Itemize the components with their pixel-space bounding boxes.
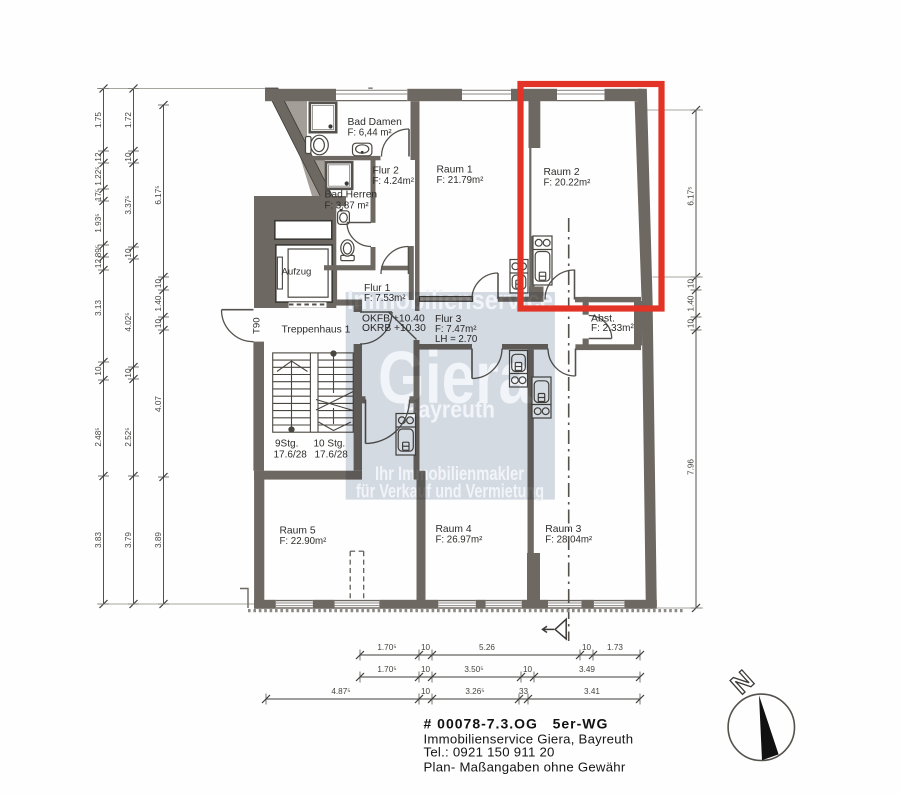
svg-text:89⁵: 89⁵ (94, 245, 103, 258)
svg-text:F: 6,44 m²: F: 6,44 m² (348, 128, 393, 139)
svg-text:Treppenhaus 1: Treppenhaus 1 (282, 325, 351, 336)
svg-text:1.40: 1.40 (154, 295, 163, 311)
svg-text:Flur 2: Flur 2 (373, 166, 400, 177)
svg-text:17⁵: 17⁵ (94, 189, 103, 202)
svg-text:Bad Damen: Bad Damen (348, 117, 403, 128)
svg-text:10: 10 (124, 368, 133, 378)
svg-text:10: 10 (154, 279, 163, 289)
svg-text:F: 2.33m²: F: 2.33m² (591, 323, 634, 334)
svg-text:Raum 3: Raum 3 (545, 524, 581, 535)
svg-text:4.02⁵: 4.02⁵ (124, 312, 133, 331)
svg-text:2.52⁵: 2.52⁵ (124, 427, 133, 446)
svg-text:3.26⁵: 3.26⁵ (465, 687, 484, 696)
svg-text:1.70⁵: 1.70⁵ (377, 643, 396, 652)
svg-text:10: 10 (124, 152, 133, 162)
svg-text:10: 10 (94, 366, 103, 376)
svg-text:1.73: 1.73 (607, 643, 623, 652)
svg-text:F: 26.97m²: F: 26.97m² (436, 535, 484, 546)
svg-text:9Stg.: 9Stg. (275, 439, 298, 450)
svg-text:Bayreuth: Bayreuth (403, 397, 495, 424)
svg-text:1.70⁵: 1.70⁵ (377, 665, 396, 674)
svg-text:5.26: 5.26 (479, 643, 495, 652)
svg-text:3.37⁵: 3.37⁵ (124, 195, 133, 214)
svg-text:17.6/28: 17.6/28 (315, 450, 349, 461)
svg-text:10: 10 (421, 665, 431, 674)
svg-text:F: 28.04m²: F: 28.04m² (545, 535, 593, 546)
svg-text:F: 3,87 m²: F: 3,87 m² (325, 201, 370, 212)
svg-text:10: 10 (687, 319, 696, 329)
svg-text:3.83: 3.83 (94, 532, 103, 548)
svg-text:1.75: 1.75 (94, 112, 103, 128)
svg-text:4.07: 4.07 (154, 396, 163, 412)
svg-text:Tel.: 0921 150 911 20: Tel.: 0921 150 911 20 (424, 745, 555, 760)
svg-text:Raum 2: Raum 2 (544, 167, 580, 178)
svg-text:12: 12 (94, 259, 103, 269)
svg-text:F: 21.79m²: F: 21.79m² (437, 175, 485, 186)
svg-text:6.17⁵: 6.17⁵ (687, 186, 696, 205)
svg-text:# 00078-7.3.OG 5er-WG: # 00078-7.3.OG 5er-WG (424, 716, 609, 732)
svg-text:3.41: 3.41 (584, 687, 600, 696)
svg-text:Raum 1: Raum 1 (437, 165, 473, 176)
svg-text:1.22⁵: 1.22⁵ (94, 166, 103, 185)
svg-text:T90: T90 (252, 317, 263, 334)
svg-text:33: 33 (519, 687, 529, 696)
svg-text:10 Stg.: 10 Stg. (314, 439, 346, 450)
svg-text:1.93⁵: 1.93⁵ (94, 213, 103, 232)
svg-text:10: 10 (421, 643, 431, 652)
svg-text:17.6/28: 17.6/28 (274, 450, 308, 461)
svg-text:7.96: 7.96 (687, 459, 696, 475)
svg-text:3.89: 3.89 (154, 532, 163, 548)
svg-text:10: 10 (154, 319, 163, 329)
svg-text:Raum 4: Raum 4 (436, 524, 472, 535)
svg-text:Aufzug: Aufzug (282, 267, 312, 278)
svg-text:für Verkauf und Vermietung: für Verkauf und Vermietung (356, 481, 544, 503)
svg-text:10: 10 (523, 665, 533, 674)
svg-text:F: 20.22m²: F: 20.22m² (544, 178, 592, 189)
svg-text:1.72: 1.72 (124, 112, 133, 128)
svg-text:10: 10 (124, 248, 133, 258)
svg-text:Bad Herren: Bad Herren (325, 190, 378, 201)
svg-text:3.13: 3.13 (94, 300, 103, 316)
svg-text:F: 4.24m²: F: 4.24m² (373, 176, 415, 187)
svg-text:10: 10 (687, 279, 696, 289)
svg-text:1.40: 1.40 (687, 295, 696, 311)
svg-text:10: 10 (421, 687, 431, 696)
svg-text:6.17⁵: 6.17⁵ (154, 185, 163, 204)
svg-text:3.50⁵: 3.50⁵ (464, 665, 483, 674)
svg-text:2.48⁵: 2.48⁵ (94, 427, 103, 446)
svg-text:3.79: 3.79 (124, 532, 133, 548)
svg-text:12: 12 (94, 152, 103, 162)
svg-text:Plan- Maßangaben ohne Gewähr: Plan- Maßangaben ohne Gewähr (424, 760, 626, 775)
svg-text:10: 10 (582, 643, 592, 652)
svg-text:4.87⁵: 4.87⁵ (331, 687, 350, 696)
svg-text:F: 22.90m²: F: 22.90m² (280, 536, 328, 547)
svg-text:3.49: 3.49 (579, 665, 595, 674)
svg-text:Raum 5: Raum 5 (280, 526, 316, 537)
